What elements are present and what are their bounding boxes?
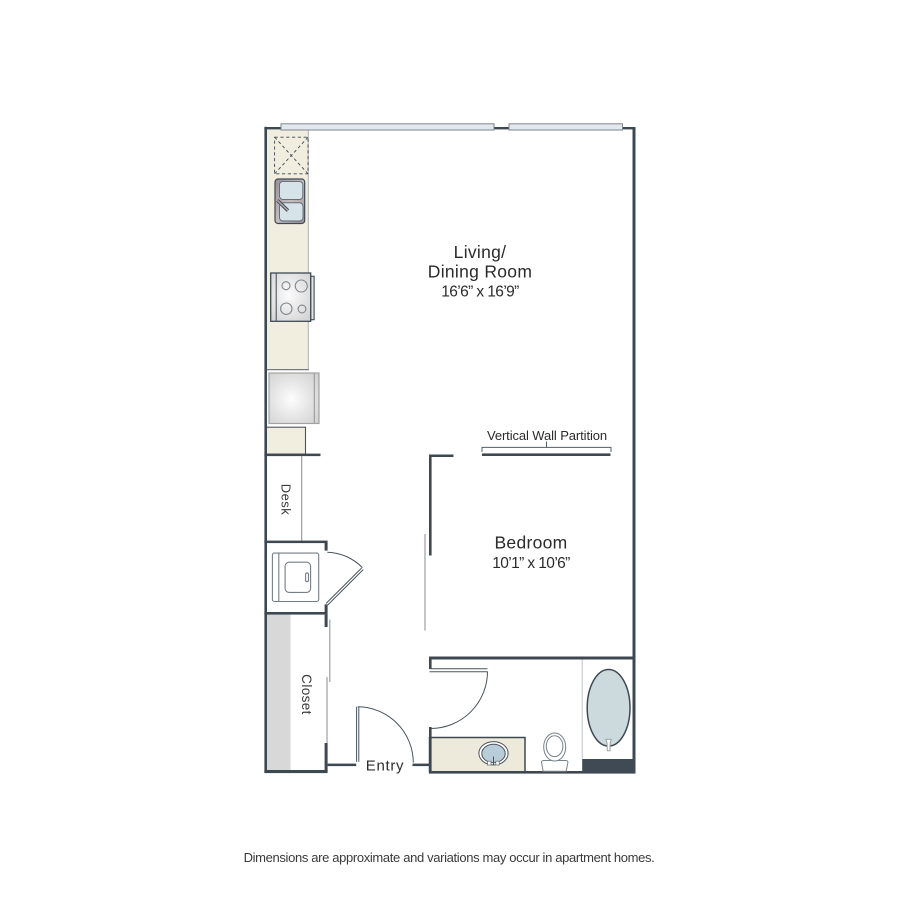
svg-text:16’6” x 16’9”: 16’6” x 16’9” bbox=[441, 284, 519, 301]
svg-text:Dimensions are approximate and: Dimensions are approximate and variation… bbox=[244, 850, 655, 865]
svg-text:Dining Room: Dining Room bbox=[428, 262, 532, 282]
svg-text:Entry: Entry bbox=[366, 758, 405, 775]
svg-text:10’1” x 10’6”: 10’1” x 10’6” bbox=[492, 555, 570, 572]
svg-text:Bedroom: Bedroom bbox=[494, 533, 567, 553]
svg-text:Desk: Desk bbox=[279, 484, 294, 516]
svg-text:Closet: Closet bbox=[299, 674, 314, 715]
svg-text:Vertical Wall Partition: Vertical Wall Partition bbox=[487, 428, 607, 443]
svg-text:Living/: Living/ bbox=[454, 242, 507, 262]
